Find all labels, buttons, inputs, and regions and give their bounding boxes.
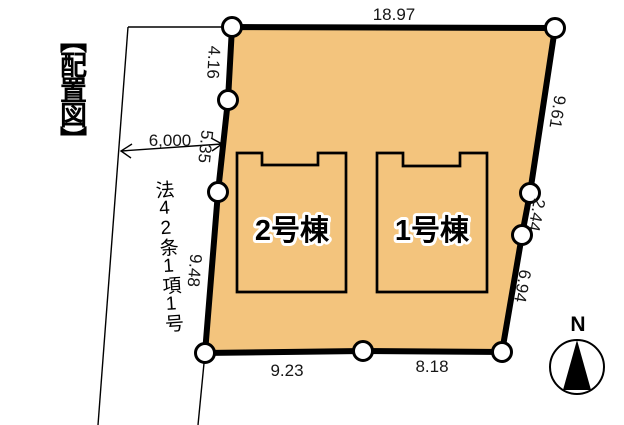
site-plan-drawing: 2号棟 1号棟 18.97 4.16 5.35 9.48 9.61 2.44 6… xyxy=(0,0,624,425)
dim-left-upper: 4.16 xyxy=(203,45,224,79)
dim-bottom-right: 8.18 xyxy=(415,357,448,376)
boundary-point xyxy=(354,342,373,361)
compass-rose: N xyxy=(550,313,604,394)
boundary-point xyxy=(546,19,565,38)
dim-top: 18.97 xyxy=(373,5,416,24)
boundary-point xyxy=(493,343,512,362)
building-1-label: 1号棟 xyxy=(395,214,470,247)
road-width-label: 6,000 xyxy=(149,131,192,150)
boundary-point xyxy=(209,183,228,202)
dim-left-lower: 9.48 xyxy=(184,253,206,288)
dim-bottom-left: 9.23 xyxy=(270,361,303,380)
dim-right-upper: 9.61 xyxy=(545,94,569,130)
page-title: 【配置図】 xyxy=(52,26,91,151)
road-boundary-line xyxy=(98,27,128,425)
building-2-label: 2号棟 xyxy=(255,214,330,247)
compass-north-label: N xyxy=(570,313,585,336)
dim-left-middle: 5.35 xyxy=(194,129,216,164)
site-plan-page: 2号棟 1号棟 18.97 4.16 5.35 9.48 9.61 2.44 6… xyxy=(0,0,624,425)
boundary-point xyxy=(223,18,242,37)
boundary-point xyxy=(196,344,215,363)
boundary-point xyxy=(219,91,238,110)
